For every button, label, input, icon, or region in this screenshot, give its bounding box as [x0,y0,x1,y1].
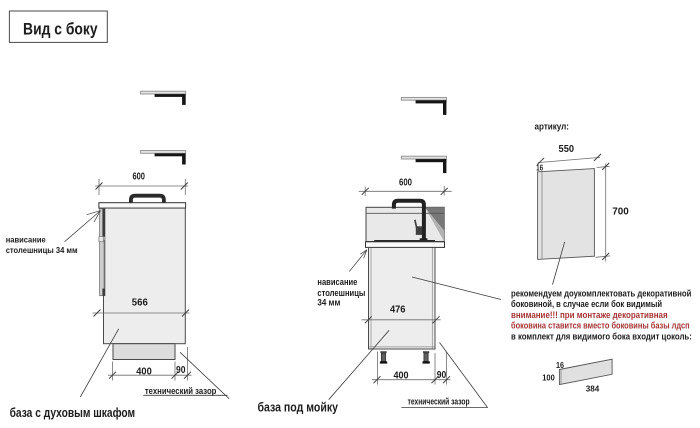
svg-text:566: 566 [132,298,148,309]
svg-text:Вид с боку: Вид с боку [23,21,98,39]
svg-text:база с духовым шкафом: база с духовым шкафом [10,405,136,420]
svg-text:технический зазор: технический зазор [408,397,470,407]
svg-text:476: 476 [390,305,406,316]
svg-text:400: 400 [394,371,409,382]
svg-text:90: 90 [176,365,186,376]
svg-text:90: 90 [437,370,447,381]
svg-text:столешницы 34 мм: столешницы 34 мм [6,245,78,255]
svg-text:внимание!!! при монтаже декора: внимание!!! при монтаже декоративная [511,310,668,321]
svg-text:боковина ставится вместо боков: боковина ставится вместо боковины базы л… [511,321,690,332]
svg-text:100: 100 [542,373,555,383]
svg-text:база под мойку: база под мойку [258,400,339,415]
svg-text:нависание: нависание [6,235,46,245]
svg-text:400: 400 [136,366,152,377]
svg-text:артикул:: артикул: [535,121,570,131]
svg-text:600: 600 [132,172,145,183]
svg-text:600: 600 [399,178,412,189]
svg-text:700: 700 [612,207,629,218]
svg-text:технический зазор: технический зазор [145,386,217,396]
svg-text:384: 384 [586,384,600,394]
svg-text:столешницы: столешницы [317,288,365,298]
svg-text:34 мм: 34 мм [317,298,340,308]
svg-text:550: 550 [559,144,575,155]
svg-text:нависание: нависание [317,277,357,287]
svg-text:16: 16 [536,162,543,172]
svg-text:боковиной, в случае если бок в: боковиной, в случае если бок видимый [511,299,662,310]
svg-text:в комплект для видимого бока в: в комплект для видимого бока входит цоко… [511,332,692,343]
svg-text:рекомендуем доукомплектовать д: рекомендуем доукомплектовать декоративно… [511,288,691,299]
